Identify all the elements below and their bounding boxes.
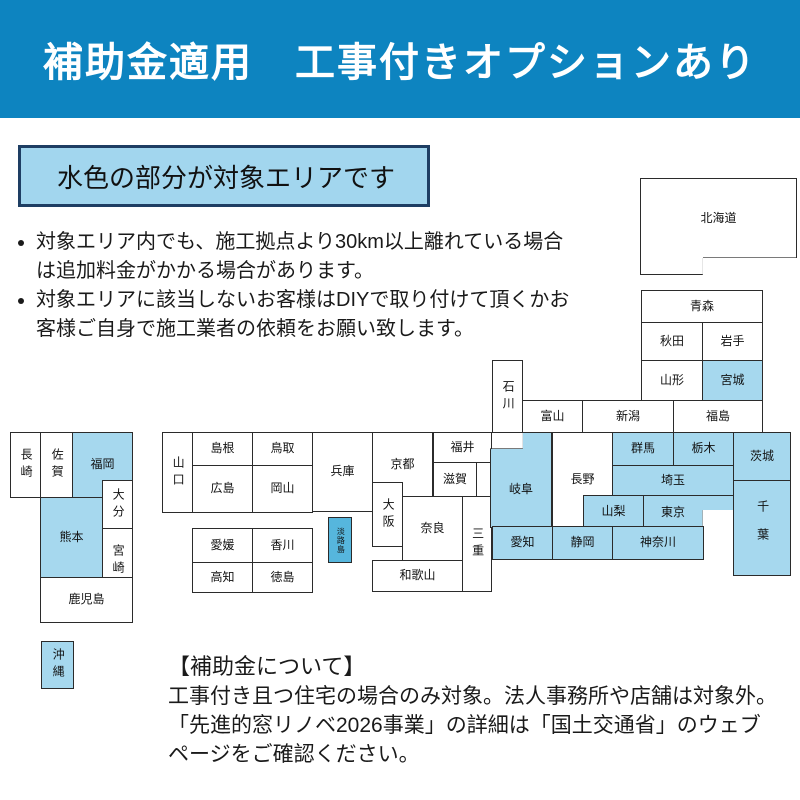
pref-kumamoto: 熊本 bbox=[40, 497, 103, 578]
subsidy-note-line: 「先進的窓リノベ2026事業」の詳細は「国土交通省」のウェブ bbox=[168, 711, 788, 740]
subsidy-note-line: ページをご確認ください。 bbox=[168, 740, 788, 769]
pref-hiroshima: 広島 bbox=[192, 465, 253, 513]
pref-shimane: 島根 bbox=[192, 432, 253, 466]
pref-gunma: 群馬 bbox=[612, 432, 674, 466]
pref-kagoshima: 鹿児島 bbox=[40, 577, 133, 623]
pref-saitama: 埼玉 bbox=[612, 465, 734, 496]
pref-tochigi: 栃木 bbox=[673, 432, 734, 466]
pref-iwate: 岩手 bbox=[702, 322, 763, 361]
pref-toyama: 富山 bbox=[522, 400, 583, 433]
pref-yamaguchi: 山口 bbox=[162, 432, 193, 513]
pref-niigata: 新潟 bbox=[582, 400, 674, 433]
pref-shizuoka: 静岡 bbox=[552, 526, 613, 560]
pref-fukui: 福井 bbox=[433, 432, 492, 463]
pref-saga: 佐賀 bbox=[40, 432, 73, 498]
pref-wakayama: 和歌山 bbox=[372, 560, 463, 592]
pref-gifu: 岐阜 bbox=[490, 432, 552, 528]
pref-miyagi: 宮城 bbox=[702, 360, 763, 401]
pref-kagawa: 香川 bbox=[252, 528, 313, 563]
pref-awajishima: 淡路島 bbox=[328, 517, 352, 563]
subsidy-note-line: 工事付き且つ住宅の場合のみ対象。法人事務所や店舗は対象外。 bbox=[168, 682, 788, 711]
pref-tokushima: 徳島 bbox=[252, 562, 313, 593]
pref-hyogo: 兵庫 bbox=[312, 432, 373, 512]
pref-nagasaki: 長崎 bbox=[10, 432, 41, 498]
pref-okinawa: 沖縄 bbox=[41, 641, 74, 689]
pref-yamagata: 山形 bbox=[641, 360, 703, 401]
pref-mie: 三重 bbox=[462, 496, 492, 592]
pref-tokyo: 東京 bbox=[643, 495, 734, 527]
pref-fukushima: 福島 bbox=[673, 400, 763, 433]
pref-hokkaido: 北海道 bbox=[640, 178, 797, 275]
pref-ishikawa: 石川 bbox=[492, 360, 523, 433]
pref-akita: 秋田 bbox=[641, 322, 703, 361]
pref-kanagawa: 神奈川 bbox=[612, 526, 704, 560]
pref-aomori: 青森 bbox=[641, 290, 763, 323]
pref-okayama: 岡山 bbox=[252, 465, 313, 513]
pref-yamanashi: 山梨 bbox=[583, 495, 644, 528]
subsidy-note-title: 【補助金について】 bbox=[168, 652, 788, 682]
pref-chiba: 千葉 bbox=[733, 480, 791, 576]
pref-aichi: 愛知 bbox=[492, 526, 553, 560]
pref-ehime: 愛媛 bbox=[192, 528, 253, 563]
pref-kochi: 高知 bbox=[192, 562, 253, 593]
pref-tottori: 鳥取 bbox=[252, 432, 313, 466]
pref-nara: 奈良 bbox=[402, 496, 463, 561]
pref-shiga: 滋賀 bbox=[433, 462, 477, 497]
pref-oita: 大分 bbox=[102, 480, 133, 529]
pref-osaka: 大阪 bbox=[372, 482, 403, 547]
subsidy-note: 【補助金について】 工事付き且つ住宅の場合のみ対象。法人事務所や店舗は対象外。 … bbox=[168, 652, 788, 769]
pref-ibaraki: 茨城 bbox=[733, 432, 791, 481]
